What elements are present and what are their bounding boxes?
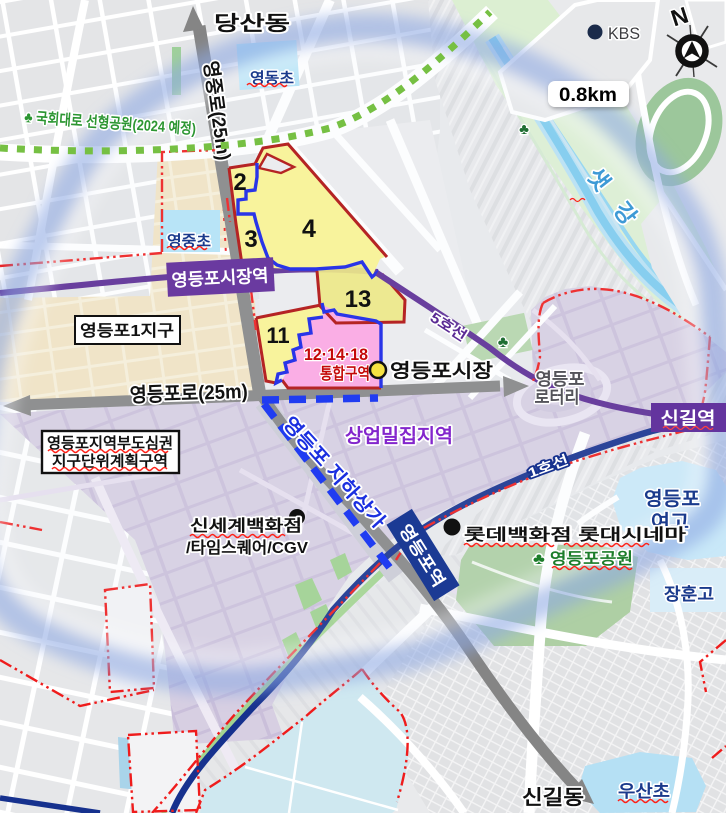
svg-text:장훈고: 장훈고 [664,584,714,604]
svg-text:♣: ♣ [519,121,529,138]
svg-text:영등포: 영등포 [644,488,700,510]
svg-text:/타임스퀘어/CGV: /타임스퀘어/CGV [186,539,308,557]
svg-text:신세계백화점: 신세계백화점 [190,516,302,535]
svg-text:우산초: 우산초 [618,782,670,801]
svg-text:3: 3 [244,226,257,253]
svg-text:2: 2 [233,169,246,196]
svg-text:영등포시장: 영등포시장 [390,360,494,382]
svg-text:0.8km: 0.8km [559,85,617,106]
svg-text:통합구역: 통합구역 [320,365,370,383]
svg-text:11: 11 [266,323,289,348]
svg-text:♣ 영등포공원: ♣ 영등포공원 [533,550,633,568]
svg-text:♣: ♣ [498,334,509,351]
svg-text:롯데백화점 롯대시네마: 롯데백화점 롯대시네마 [464,525,686,544]
svg-text:13: 13 [345,286,372,313]
svg-text:12·14·18: 12·14·18 [304,345,368,364]
svg-text:KBS: KBS [608,24,640,43]
svg-text:4: 4 [302,215,316,243]
svg-text:당산동: 당산동 [214,12,290,35]
svg-text:지구단위계획구역: 지구단위계획구역 [52,453,168,470]
svg-text:상업밀집지역: 상업밀집지역 [345,425,453,447]
svg-text:신길역: 신길역 [661,409,716,428]
svg-text:신길동: 신길동 [522,786,584,809]
svg-text:영등포: 영등포 [536,370,585,389]
svg-text:영중초: 영중초 [167,232,211,250]
svg-text:영등포로(25m): 영등포로(25m) [129,380,248,407]
svg-text:영등포1지구: 영등포1지구 [80,322,174,340]
svg-text:로터리: 로터리 [535,388,580,407]
